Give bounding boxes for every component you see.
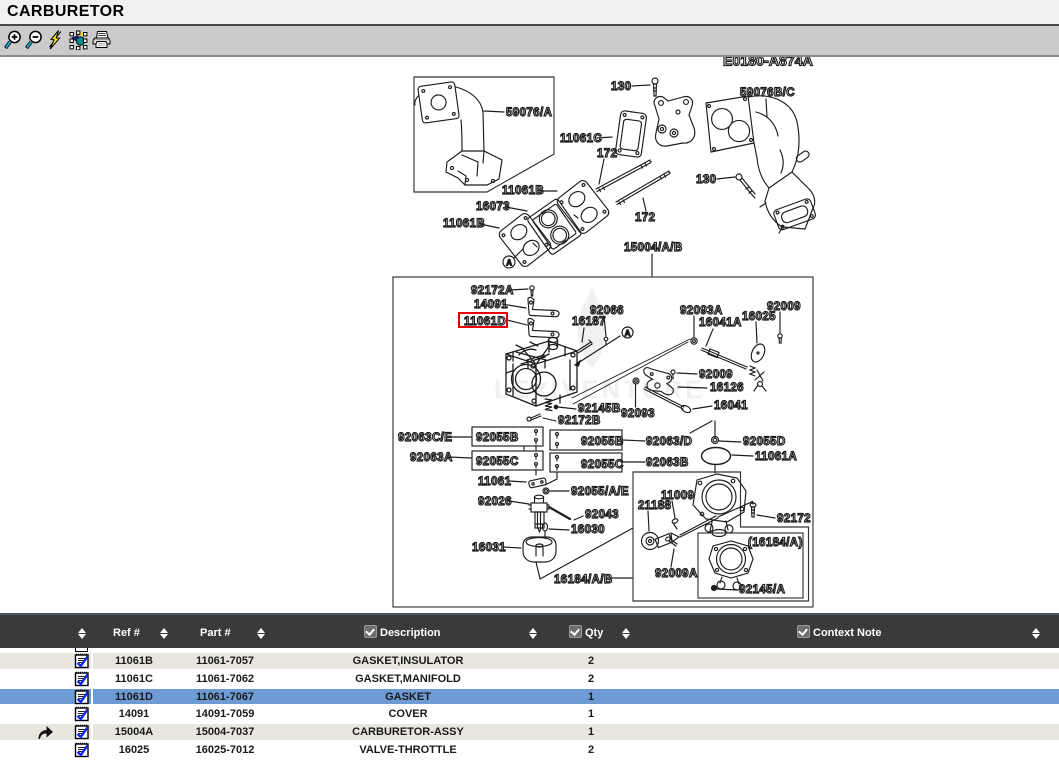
svg-text:172: 172 bbox=[635, 212, 655, 224]
svg-text:92055C: 92055C bbox=[476, 456, 519, 468]
svg-text:11061: 11061 bbox=[478, 476, 512, 488]
svg-text:92063A: 92063A bbox=[410, 452, 453, 464]
svg-text:16041: 16041 bbox=[714, 400, 748, 412]
svg-text:92093A: 92093A bbox=[680, 305, 723, 317]
svg-text:16041A: 16041A bbox=[699, 317, 742, 329]
svg-text:92043: 92043 bbox=[585, 509, 619, 521]
svg-text:16184/A/B: 16184/A/B bbox=[554, 574, 613, 586]
svg-text:92055B: 92055B bbox=[581, 436, 624, 448]
svg-text:16126: 16126 bbox=[710, 382, 744, 394]
svg-text:130: 130 bbox=[611, 81, 631, 93]
svg-text:E0180-A874A: E0180-A874A bbox=[723, 57, 813, 70]
svg-text:92055B: 92055B bbox=[476, 432, 519, 444]
svg-text:A: A bbox=[506, 258, 512, 267]
svg-text:92172B: 92172B bbox=[558, 415, 601, 427]
svg-text:16030: 16030 bbox=[571, 524, 605, 536]
svg-text:92009: 92009 bbox=[699, 369, 733, 381]
svg-text:130: 130 bbox=[696, 174, 716, 186]
svg-text:92063B: 92063B bbox=[646, 457, 689, 469]
svg-text:59076B/C: 59076B/C bbox=[740, 87, 795, 99]
svg-text:92063/D: 92063/D bbox=[646, 436, 692, 448]
svg-text:92009A: 92009A bbox=[655, 568, 698, 580]
svg-text:16187: 16187 bbox=[572, 316, 606, 328]
svg-text:16073: 16073 bbox=[476, 201, 510, 213]
svg-text:92055D: 92055D bbox=[743, 436, 786, 448]
svg-text:92026: 92026 bbox=[478, 496, 512, 508]
svg-text:92172A: 92172A bbox=[471, 285, 514, 297]
svg-text:21188: 21188 bbox=[638, 500, 672, 512]
svg-text:172: 172 bbox=[597, 148, 617, 160]
svg-text:11061B: 11061B bbox=[502, 185, 544, 197]
svg-text:59076/A: 59076/A bbox=[506, 107, 552, 119]
svg-text:11061A: 11061A bbox=[755, 451, 797, 463]
svg-text:92172: 92172 bbox=[777, 513, 811, 525]
svg-text:92055/A/E: 92055/A/E bbox=[571, 486, 629, 498]
svg-text:A: A bbox=[625, 329, 631, 338]
svg-text:92145/A: 92145/A bbox=[739, 584, 785, 596]
svg-text:15004/A/B: 15004/A/B bbox=[624, 242, 683, 254]
svg-text:92063C/E: 92063C/E bbox=[398, 432, 452, 444]
svg-text:(16184/A): (16184/A) bbox=[748, 537, 803, 549]
svg-text:92009: 92009 bbox=[767, 301, 801, 313]
svg-text:11061C: 11061C bbox=[560, 133, 602, 145]
svg-text:92145B: 92145B bbox=[578, 403, 621, 415]
svg-text:11061B: 11061B bbox=[443, 218, 485, 230]
svg-text:92093: 92093 bbox=[621, 408, 655, 420]
svg-text:14091: 14091 bbox=[474, 299, 508, 311]
svg-text:92055C: 92055C bbox=[581, 459, 624, 471]
svg-text:92066: 92066 bbox=[590, 305, 624, 317]
svg-text:16031: 16031 bbox=[472, 542, 506, 554]
